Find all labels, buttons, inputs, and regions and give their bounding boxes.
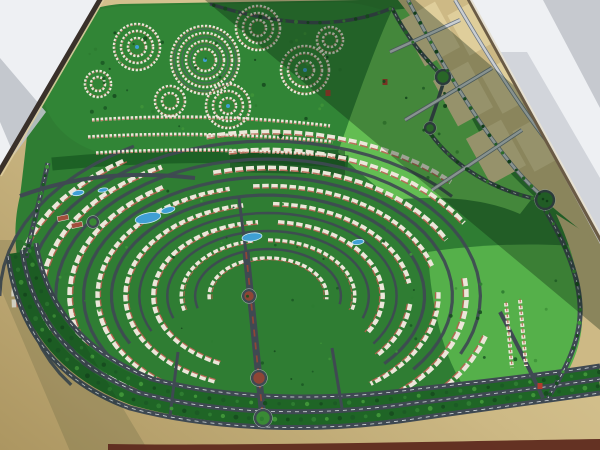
tree-dot — [376, 413, 380, 417]
tree-dot — [449, 314, 453, 318]
tree-dot — [544, 391, 549, 396]
tree-dot — [555, 376, 559, 380]
tree-dot — [583, 386, 588, 391]
tree-dot — [322, 258, 324, 260]
tree-dot — [90, 110, 94, 114]
tree-dot — [531, 393, 535, 397]
roundabout — [243, 290, 255, 302]
tree-dot — [123, 29, 126, 32]
architectural-model-scene — [0, 0, 600, 450]
tree-dot — [570, 388, 574, 392]
tree-dot — [472, 387, 476, 391]
tree-dot — [44, 174, 47, 177]
tree-dot — [200, 200, 203, 203]
tree-dot — [221, 398, 225, 402]
tree-dot — [291, 402, 295, 406]
tree-dot — [35, 209, 39, 213]
tree-dot — [229, 43, 233, 47]
tree-dot — [306, 205, 308, 207]
tree-dot — [501, 290, 504, 293]
tree-dot — [59, 276, 62, 279]
tree-dot — [411, 296, 413, 298]
tree-dot — [208, 413, 212, 417]
tree-dot — [260, 417, 264, 421]
tree-dot — [114, 370, 117, 373]
tree-dot — [255, 104, 258, 107]
tree-dot — [415, 408, 419, 412]
tree-dot — [144, 401, 148, 405]
tree-dot — [325, 417, 329, 421]
tree-dot — [103, 106, 107, 110]
tree-dot — [441, 405, 445, 409]
tree-dot — [557, 390, 561, 394]
tree-dot — [304, 117, 307, 120]
tree-dot — [576, 334, 579, 337]
tree-dot — [483, 356, 486, 359]
tree-dot — [27, 244, 31, 248]
tree-dot — [161, 41, 165, 45]
tree-dot — [182, 409, 186, 413]
tree-dot — [246, 295, 249, 298]
tree-dot — [247, 416, 251, 420]
tree-dot — [301, 383, 304, 386]
tree-dot — [493, 398, 497, 402]
cluster-pool — [226, 104, 230, 108]
tree-dot — [194, 66, 197, 69]
tree-dot — [500, 384, 504, 388]
tree-dot — [542, 378, 546, 382]
tree-dot — [434, 308, 436, 310]
tree-dot — [109, 68, 111, 70]
tree-dot — [528, 380, 531, 383]
tree-dot — [102, 363, 106, 367]
tree-dot — [570, 375, 573, 378]
tree-dot — [94, 48, 97, 51]
tree-dot — [119, 392, 124, 397]
tree-dot — [113, 31, 116, 34]
tree-dot — [319, 402, 322, 405]
tree-dot — [140, 105, 143, 108]
tree-dot — [320, 103, 323, 106]
tree-dot — [139, 382, 143, 386]
tree-dot — [281, 203, 284, 206]
tree-dot — [153, 386, 156, 389]
tree-dot — [414, 337, 417, 340]
tree-dot — [430, 392, 434, 396]
tree-dot — [82, 80, 84, 82]
tree-dot — [455, 287, 458, 290]
tree-dot — [218, 76, 221, 79]
tree-dot — [221, 242, 223, 244]
tree-dot — [125, 246, 128, 249]
tree-dot — [305, 402, 309, 406]
tree-dot — [178, 125, 180, 127]
roundabout — [252, 371, 266, 385]
tree-dot — [226, 237, 228, 239]
tree-dot — [382, 240, 385, 243]
tree-dot — [403, 396, 406, 399]
tree-dot — [218, 96, 222, 100]
tree-dot — [561, 370, 564, 373]
tree-dot — [291, 299, 294, 302]
tree-dot — [567, 358, 571, 362]
tree-dot — [336, 209, 338, 211]
tree-dot — [386, 228, 388, 230]
tree-dot — [338, 416, 342, 420]
tree-dot — [223, 221, 225, 223]
tree-dot — [417, 394, 421, 398]
tree-dot — [236, 400, 239, 403]
tree-dot — [151, 110, 155, 114]
tree-dot — [143, 36, 147, 40]
tree-dot — [31, 227, 34, 230]
tree-dot — [336, 287, 339, 290]
tree-dot — [119, 60, 121, 62]
tree-dot — [409, 253, 412, 256]
tree-dot — [84, 300, 86, 302]
tree-dot — [389, 397, 393, 401]
tree-dot — [410, 324, 413, 327]
tree-dot — [583, 372, 587, 376]
tree-dot — [458, 389, 462, 393]
tree-dot — [126, 376, 130, 380]
tree-dot — [467, 401, 472, 406]
tree-dot — [428, 406, 433, 411]
tree-dot — [347, 400, 351, 404]
tree-dot — [103, 81, 106, 84]
photo-of-scale-model — [0, 0, 600, 450]
tree-dot — [312, 371, 314, 373]
tree-dot — [311, 417, 316, 422]
tree-dot — [39, 191, 43, 195]
tree-dot — [479, 282, 482, 285]
tree-dot — [480, 400, 484, 404]
tree-dot — [514, 382, 518, 386]
tree-dot — [180, 392, 184, 396]
tree-dot — [88, 53, 90, 55]
tree-dot — [38, 201, 41, 204]
tree-dot — [577, 321, 581, 325]
tree-dot — [454, 403, 458, 407]
tree-dot — [132, 43, 134, 45]
tree-dot — [172, 256, 175, 259]
tree-dot — [197, 69, 200, 72]
tree-dot — [596, 384, 600, 388]
tree-dot — [29, 235, 32, 239]
tree-dot — [413, 289, 415, 291]
tree-dot — [112, 94, 116, 98]
tree-dot — [476, 317, 479, 320]
cluster-pool — [135, 45, 139, 49]
tree-dot — [215, 41, 218, 44]
tree-dot — [194, 395, 197, 398]
tree-dot — [126, 89, 128, 91]
tree-dot — [548, 392, 552, 396]
tree-dot — [318, 107, 321, 110]
tree-dot — [166, 389, 170, 393]
tree-dot — [274, 350, 276, 352]
tree-dot — [45, 165, 49, 169]
tree-dot — [240, 136, 243, 139]
roundabout — [88, 217, 98, 227]
tree-dot — [181, 127, 184, 130]
tree-dot — [505, 396, 510, 401]
tree-dot — [102, 77, 105, 80]
tree-dot — [250, 93, 254, 97]
tree-dot — [272, 417, 277, 422]
tree-dot — [290, 378, 292, 380]
tree-dot — [249, 400, 253, 404]
tree-dot — [181, 327, 183, 329]
tree-dot — [234, 415, 239, 420]
tree-dot — [534, 359, 537, 362]
tree-dot — [350, 415, 355, 420]
tree-dot — [132, 398, 136, 402]
tree-dot — [286, 418, 290, 422]
tree-dot — [445, 391, 448, 394]
tree-dot — [274, 244, 277, 247]
tree-dot — [232, 206, 234, 208]
tree-dot — [328, 358, 331, 361]
tree-dot — [166, 190, 169, 193]
tree-dot — [403, 410, 407, 414]
tree-dot — [101, 61, 105, 65]
tree-dot — [375, 398, 379, 402]
tree-dot — [207, 396, 211, 400]
tree-dot — [254, 59, 256, 61]
tree-dot — [263, 401, 267, 405]
tree-dot — [333, 401, 337, 405]
tree-dot — [299, 417, 303, 421]
tree-dot — [204, 57, 206, 59]
tree-dot — [279, 134, 283, 138]
tree-dot — [33, 218, 37, 222]
tree-dot — [170, 407, 174, 411]
tree-dot — [519, 395, 523, 399]
tree-dot — [41, 183, 45, 187]
tree-dot — [478, 310, 482, 314]
tree-dot — [296, 246, 298, 248]
tree-dot — [545, 308, 548, 311]
tree-dot — [262, 83, 266, 87]
tree-dot — [364, 415, 368, 419]
tree-dot — [389, 411, 394, 416]
tree-dot — [261, 361, 264, 364]
tree-dot — [320, 342, 322, 344]
tree-dot — [195, 410, 200, 415]
tree-dot — [65, 273, 68, 276]
tree-dot — [376, 324, 379, 327]
tree-dot — [487, 386, 490, 389]
tree-dot — [98, 309, 101, 312]
tree-dot — [572, 346, 576, 350]
tree-dot — [361, 400, 364, 403]
tree-dot — [555, 381, 559, 385]
tree-dot — [207, 38, 211, 42]
tree-dot — [156, 404, 161, 409]
tree-dot — [211, 340, 213, 342]
tree-dot — [221, 414, 225, 418]
tree-dot — [311, 305, 314, 308]
red-landmark-structure — [538, 383, 543, 389]
tree-dot — [395, 350, 398, 353]
tree-dot — [277, 402, 280, 405]
tree-dot — [513, 357, 517, 361]
